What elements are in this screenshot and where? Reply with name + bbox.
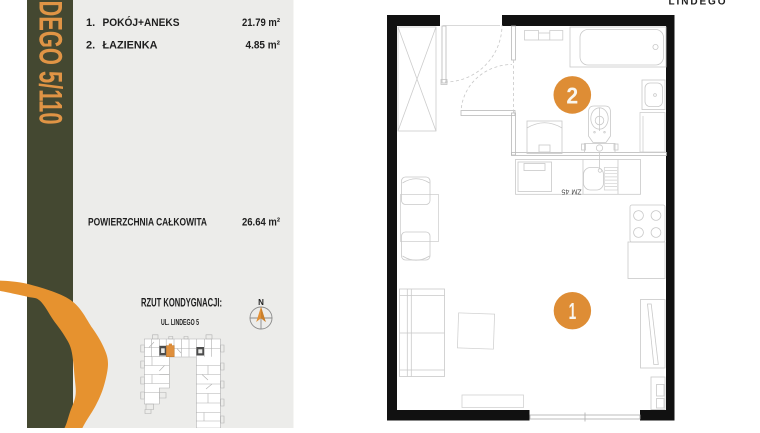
svg-text:UL. LINDEGO 5: UL. LINDEGO 5 (161, 317, 199, 327)
svg-text:1: 1 (569, 298, 577, 324)
svg-text:POKÓJ+ANEKS: POKÓJ+ANEKS (103, 16, 180, 29)
svg-text:26.64 m²: 26.64 m² (242, 217, 280, 229)
svg-text:1.: 1. (86, 17, 95, 29)
svg-text:ŁAZIENKA: ŁAZIENKA (103, 40, 158, 52)
svg-text:N: N (258, 298, 264, 307)
svg-text:21.79 m²: 21.79 m² (242, 17, 280, 29)
svg-text:DEGO 5/110: DEGO 5/110 (33, 1, 69, 125)
svg-text:ZM 45: ZM 45 (561, 188, 581, 195)
svg-text:2.: 2. (86, 40, 95, 52)
svg-text:4.85 m²: 4.85 m² (246, 40, 281, 52)
svg-text:2: 2 (566, 83, 578, 109)
svg-text:LINDEGO: LINDEGO (669, 0, 726, 8)
svg-text:POWIERZCHNIA CAŁKOWITA: POWIERZCHNIA CAŁKOWITA (88, 217, 207, 229)
svg-text:RZUT KONDYGNACJI:: RZUT KONDYGNACJI: (141, 296, 222, 310)
